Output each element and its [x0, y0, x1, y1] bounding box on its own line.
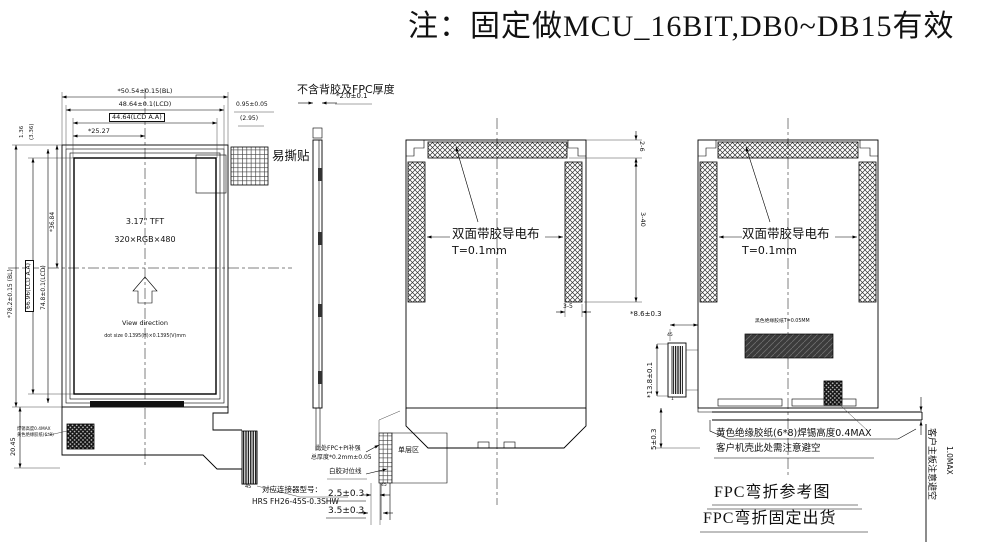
black-insulation-tape	[745, 334, 833, 358]
inner-sticker-outline	[196, 155, 226, 193]
customer-board-note: 客户主板注意避空	[926, 428, 936, 500]
dim-lcd-width: 48.64±0.1(LCD)	[90, 101, 200, 108]
resolution-label: 320×RGB×480	[95, 236, 195, 245]
yellow-tape-solder-note: 黄色绝缘胶纸(6*8)焊锡高度0.4MAX	[716, 429, 872, 440]
conductive-cloth-thickness-right: T=0.1mm	[742, 245, 797, 257]
back-view-middle	[406, 118, 642, 505]
black-tape-note: 黑色绝缘胶纸T=0.05MM	[755, 319, 810, 324]
fpc-stiffener-hatch	[379, 433, 392, 483]
dim-edge-top: (3.36)	[29, 123, 35, 140]
solder-pad-right	[824, 381, 842, 405]
dim-half-height: *36.84	[50, 212, 57, 232]
dim-top-range: 2-6	[638, 141, 645, 152]
dim-aa-width: 44.64(LCD A.A)	[109, 113, 165, 122]
drawing-note-title: 注：固定做MCU_16BIT,DB0~DB15有效	[408, 10, 955, 44]
pin-45-label-mid: 45	[381, 483, 387, 488]
dim-thickness: *2.0±0.1	[336, 93, 368, 101]
dim-edge-right-2: (2.95)	[240, 116, 258, 123]
solder-pad-front	[67, 424, 94, 449]
fpc-bend-caption-1: FPC弯折参考图	[714, 484, 830, 502]
dim-connector-height: *13.8±0.1	[647, 362, 655, 398]
yellow-tape-note: 黄色绝缘胶纸(6*8)	[17, 434, 54, 439]
conductive-cloth-thickness: T=0.1mm	[452, 245, 507, 257]
pin-1-label-right: 1	[671, 397, 674, 402]
conductive-cloth-label: 双面带胶导电布	[452, 227, 540, 241]
dim-fold-2: 3.5±0.3	[328, 506, 364, 516]
dim-fold-1: 2.5±0.3	[328, 489, 364, 499]
fpc-stiffener-note-1: 此处FPC+PI补强	[315, 446, 361, 453]
stiffener-bar-front	[90, 401, 184, 407]
drawing-sheet: 注：固定做MCU_16BIT,DB0~DB15有效 *50.54±0.15(BL…	[0, 0, 1000, 544]
conductive-tape-top	[428, 142, 567, 158]
dim-lcd-height: 74.8±0.1(LCD)	[41, 265, 48, 310]
dot-size-label: dot size 0.1395(H)×0.1395(V)mm	[78, 334, 212, 339]
single-layer-label: 单层区	[398, 447, 419, 455]
fpc-bend-caption-2: FPC弯折固定出货	[703, 510, 836, 528]
dim-fold-offset: 5±0.3	[651, 429, 659, 450]
view-direction-label: View direction	[95, 320, 195, 327]
conductive-tape-left	[700, 162, 717, 302]
dim-edge-top-2: 1.36	[19, 126, 25, 138]
dim-gap-max: 1.0MAX	[945, 446, 953, 475]
conductive-tape-right	[859, 162, 876, 302]
tear-sticker-label: 易撕贴	[272, 149, 310, 163]
dim-aa-height: 66.96(LCD A.A)	[25, 260, 34, 312]
customer-case-note: 客户机壳此处需注意避空	[716, 444, 821, 455]
tear-sticker-hatch	[231, 147, 268, 185]
dim-half-width: *25.27	[88, 128, 110, 135]
dim-bar-width: 3-5	[563, 304, 573, 311]
dim-tail-height: 20.45	[10, 437, 17, 456]
conductive-tape-left	[408, 162, 425, 302]
pin-45-label-right: 45	[667, 333, 673, 338]
fpc-stiffener-note-2: 总厚度*0.2mm±0.05	[311, 455, 372, 462]
dim-bl-height: *78.2±0.15 (BL)	[8, 269, 15, 318]
connector-model-label: 对应连接器型号：	[262, 486, 322, 494]
conductive-tape-right	[565, 162, 582, 302]
drawing-linework	[0, 0, 1000, 544]
conductive-cloth-label-right: 双面带胶导电布	[742, 227, 830, 241]
pin-45-label: 45	[245, 485, 251, 491]
dim-edge-right: 0.95±0.05	[236, 102, 268, 109]
glue-align-line-label: 白胶对位线	[329, 468, 362, 475]
dim-bl-width: *50.54±0.15(BL)	[90, 88, 200, 95]
panel-size-label: 3.17" TFT	[95, 218, 195, 227]
fpc-connector-right	[671, 346, 683, 394]
fpc-fold-detail	[327, 411, 447, 520]
connector-model-number: HRS FH26-45S-0.3SHW	[252, 498, 339, 506]
back-view-right	[655, 118, 926, 542]
fpc-connector-front	[242, 431, 257, 484]
dim-side-range: 3-40	[639, 212, 646, 227]
dim-offset: *8.6±0.3	[630, 311, 662, 319]
